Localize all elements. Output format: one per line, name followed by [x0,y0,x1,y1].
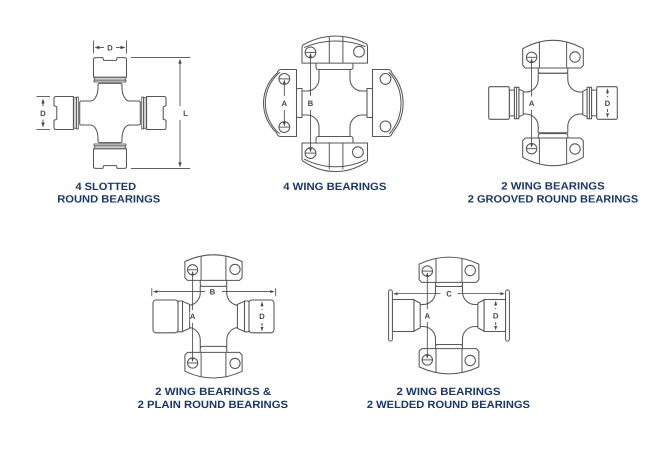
svg-text:A: A [424,311,430,320]
svg-text:ROUND BEARINGS: ROUND BEARINGS [57,194,160,206]
svg-text:D: D [40,109,46,118]
svg-text:2 WELDED ROUND BEARINGS: 2 WELDED ROUND BEARINGS [367,399,530,411]
svg-text:4 SLOTTED: 4 SLOTTED [75,181,136,193]
svg-text:B: B [210,288,216,297]
svg-text:D: D [605,99,611,108]
svg-text:C: C [446,289,452,298]
svg-text:D: D [259,312,265,321]
svg-text:L: L [183,109,188,118]
svg-text:B: B [308,99,314,108]
svg-text:A: A [529,99,535,108]
svg-text:2 PLAIN ROUND BEARINGS: 2 PLAIN ROUND BEARINGS [138,399,288,411]
svg-text:2 WING BEARINGS &: 2 WING BEARINGS & [155,386,271,398]
svg-text:A: A [190,312,196,321]
svg-text:A: A [281,99,287,108]
svg-text:2 GROOVED ROUND BEARINGS: 2 GROOVED ROUND BEARINGS [468,193,638,205]
svg-text:2 WING BEARINGS: 2 WING BEARINGS [501,180,604,192]
svg-text:4 WING BEARINGS: 4 WING BEARINGS [283,181,386,193]
svg-text:2 WING BEARINGS: 2 WING BEARINGS [397,386,501,398]
svg-text:D: D [107,43,113,52]
svg-text:D: D [493,311,499,320]
